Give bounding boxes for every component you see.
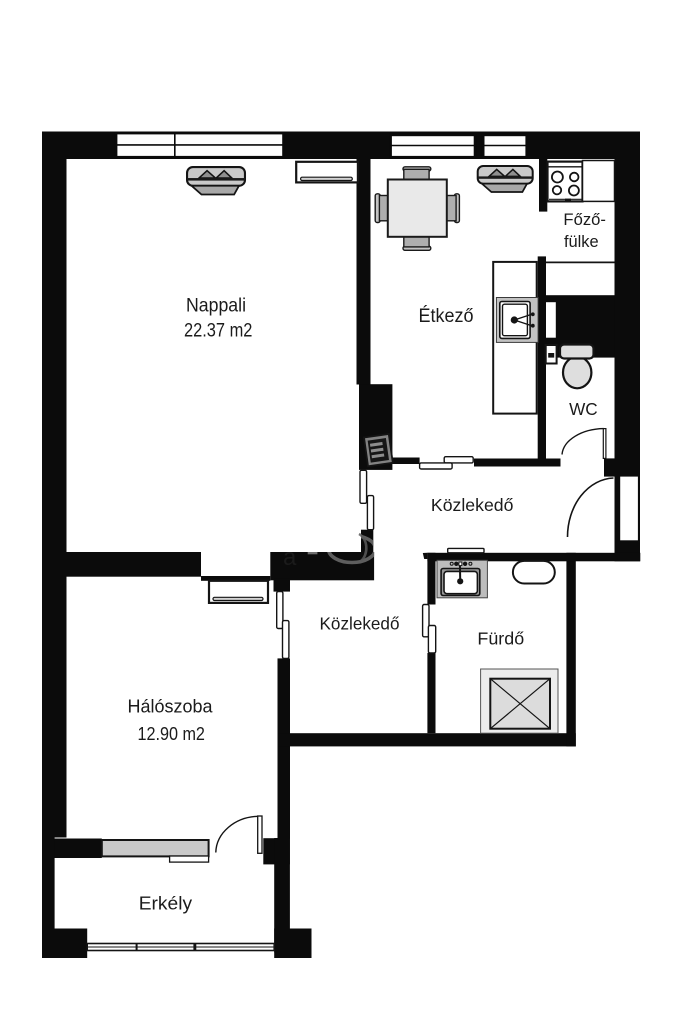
svg-text:Étkező: Étkező	[419, 306, 474, 327]
svg-text:Hálószoba: Hálószoba	[128, 697, 214, 717]
svg-text:22.37 m2: 22.37 m2	[184, 321, 253, 342]
svg-text:Főző-: Főző-	[563, 211, 606, 229]
svg-text:WC: WC	[569, 399, 598, 419]
svg-text:fülke: fülke	[564, 233, 599, 251]
svg-text:Közlekedő: Közlekedő	[320, 614, 400, 634]
svg-text:Fürdő: Fürdő	[477, 629, 524, 649]
svg-text:Közlekedő: Közlekedő	[431, 495, 514, 515]
svg-text:12.90 m2: 12.90 m2	[137, 724, 205, 744]
svg-text:Nappali: Nappali	[186, 295, 246, 316]
svg-text:Erkély: Erkély	[139, 893, 193, 914]
